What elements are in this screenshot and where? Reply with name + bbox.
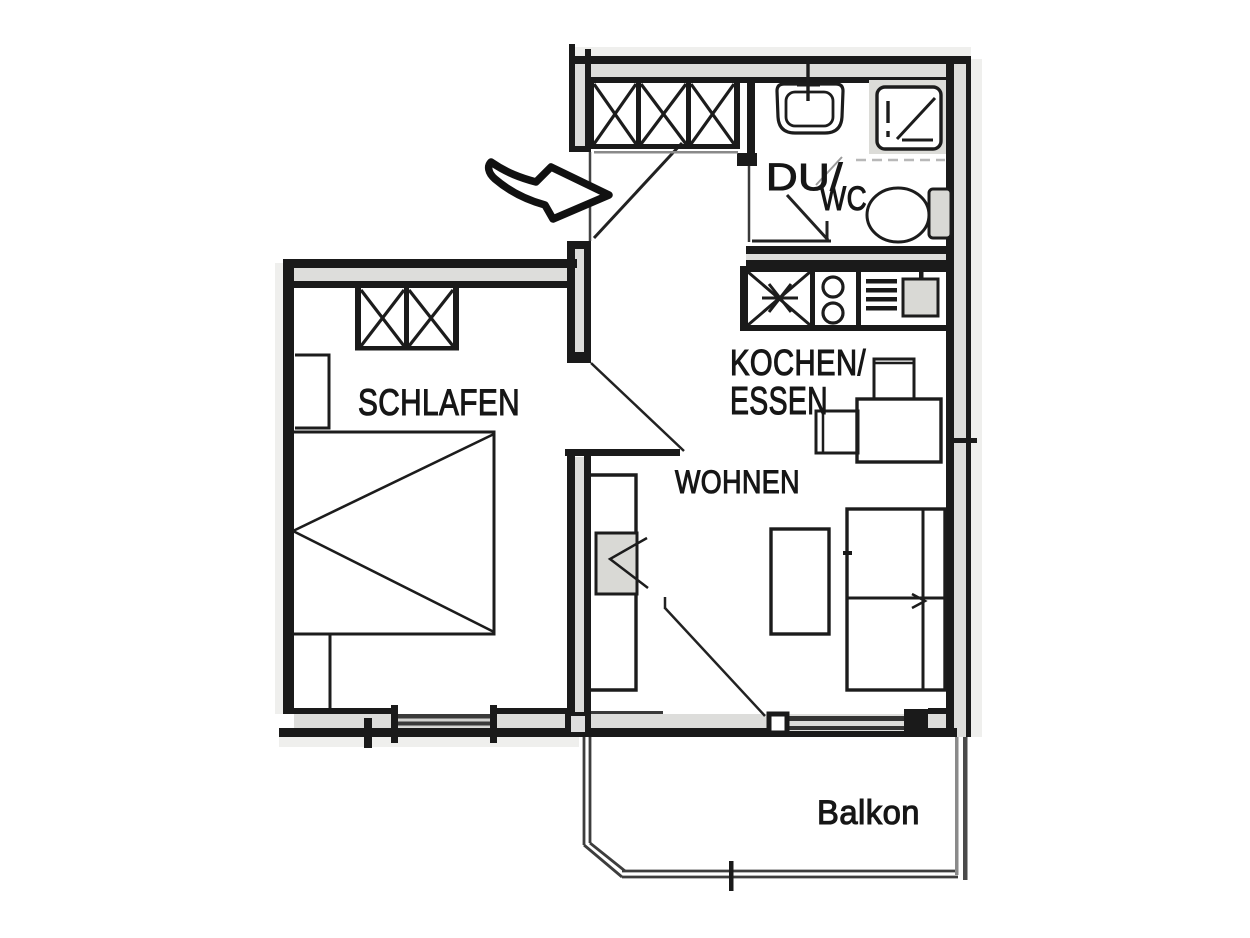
svg-text:KOCHEN/: KOCHEN/ [730,342,866,383]
svg-text:WOHNEN: WOHNEN [675,464,800,500]
svg-text:WC: WC [820,180,867,218]
svg-text:Balkon: Balkon [817,794,920,832]
svg-text:SCHLAFEN: SCHLAFEN [358,382,520,423]
svg-text:ESSEN: ESSEN [730,380,828,423]
